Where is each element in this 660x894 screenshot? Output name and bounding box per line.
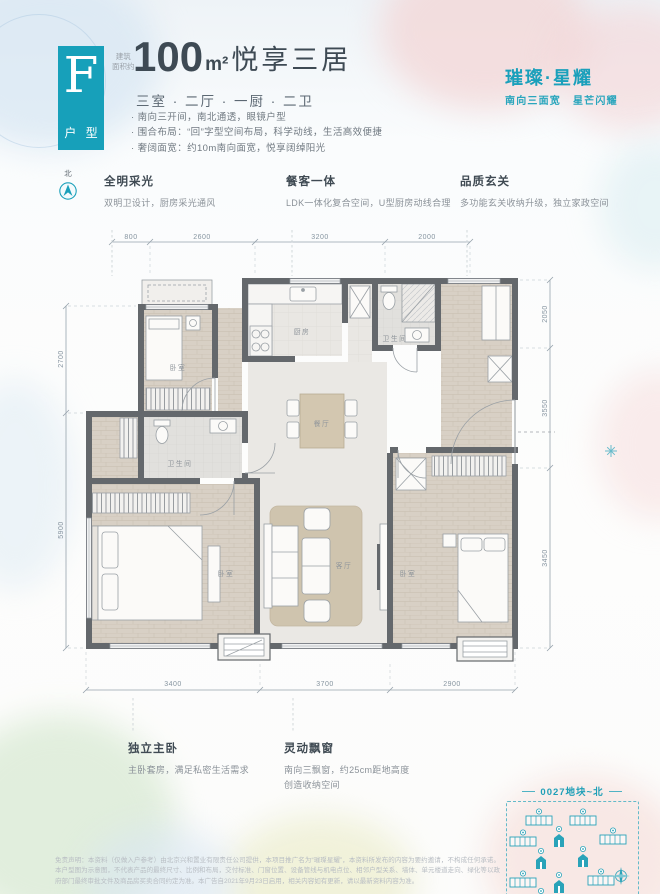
feature-daylight: 全明采光 双明卫设计，厨房采光通风 [104, 173, 284, 209]
area-unit: m² [203, 54, 231, 78]
area-prefix: 建筑 面积约 [112, 52, 135, 72]
svg-text:800: 800 [124, 234, 137, 241]
feature-ldk: 餐客一体 LDK一体化复合空间，U型厨房动线合理 [286, 173, 466, 209]
svg-text:3700: 3700 [316, 681, 334, 688]
floorplan-poster: F 户 型 建筑 面积约 100 m² 悦享三居 三室 · 二厅 · 一厨 · … [0, 0, 660, 894]
room-label-kitchen: 厨房 [294, 327, 311, 336]
north-arrow-icon [57, 180, 79, 202]
building-lowrise-icon [600, 828, 626, 844]
dash-decoration [522, 791, 535, 792]
unit-type-letter: F [64, 50, 99, 100]
building-tower-icon [536, 888, 546, 894]
svg-text:2900: 2900 [443, 681, 461, 688]
svg-text:5900: 5900 [58, 521, 65, 539]
siteplan-compass-icon [612, 867, 630, 885]
siteplan-buildings [508, 804, 636, 894]
svg-text:2700: 2700 [58, 350, 65, 368]
building-tower-icon [554, 872, 564, 893]
brand-tagline: 南向三面宽 星芒闪耀 [505, 92, 618, 107]
room-label-bathroom: 卫生间 [168, 459, 193, 468]
selling-point: · 奢阔面宽：约10m南向面宽，悦享阔绰阳光 [131, 141, 382, 156]
siteplan-label: 0027地块~北 [540, 784, 603, 798]
svg-text:2000: 2000 [418, 234, 436, 241]
selling-points: · 南向三开间，南北通透，眼镜户型 · 围合布局：“回”字型空间布局，科学动线，… [131, 110, 382, 156]
page-title: 100 m² 悦享三居 [133, 36, 351, 78]
feature-bay-window: 灵动飘窗 南向三飘窗，约25cm距地高度 创造收纳空间 [284, 740, 474, 791]
svg-text:2600: 2600 [193, 234, 211, 241]
room-label-bedroom: 卧室 [218, 569, 235, 578]
building-lowrise-icon [510, 871, 536, 887]
room-label-living: 客厅 [336, 561, 353, 570]
siteplan-map [506, 801, 639, 894]
brand-name: 璀璨·星耀 [505, 64, 593, 90]
svg-text:3450: 3450 [542, 549, 549, 567]
building-lowrise-icon [570, 809, 596, 825]
building-lowrise-icon [526, 809, 552, 825]
room-label-bedroom: 卧室 [170, 363, 187, 372]
selling-point: · 围合布局：“回”字型空间布局，科学动线，生活高效便捷 [131, 125, 382, 140]
svg-text:3200: 3200 [311, 234, 329, 241]
area-title: 悦享三居 [231, 38, 351, 78]
unit-type-label: 户 型 [64, 124, 100, 141]
building-tower-icon [554, 826, 564, 847]
building-tower-icon [536, 848, 546, 869]
north-label: 北 [54, 168, 82, 179]
sparkle-icon [604, 444, 618, 458]
area-value: 100 [133, 36, 203, 78]
building-lowrise-icon [510, 830, 536, 846]
unit-type-badge: F 户 型 [58, 46, 104, 150]
room-spec: 三室 · 二厅 · 一厨 · 二卫 [136, 90, 314, 110]
room-label-bathroom: 卫生间 [383, 334, 408, 343]
feature-foyer: 品质玄关 多功能玄关收纳升级，独立家政空间 [460, 173, 640, 209]
siteplan-title: 0027地块~北 [506, 784, 638, 798]
svg-text:2050: 2050 [542, 305, 549, 323]
svg-text:3550: 3550 [542, 399, 549, 417]
selling-point: · 南向三开间，南北通透，眼镜户型 [131, 110, 382, 125]
building-tower-icon [578, 846, 588, 867]
svg-text:3400: 3400 [164, 681, 182, 688]
disclaimer-text: 免责声明：本资料（仅做入户参考）由北京兴和置业有限责任公司提供，本项目推广名为“… [55, 856, 500, 887]
dash-decoration [609, 791, 622, 792]
building-lowrise-icon [588, 869, 614, 885]
compass: 北 [54, 168, 82, 207]
floorplan-drawing: 800 2600 3200 2000 2700 5900 2050 3550 3… [50, 228, 570, 733]
room-label-bedroom: 卧室 [400, 569, 417, 578]
room-label-dining: 餐厅 [314, 419, 331, 428]
